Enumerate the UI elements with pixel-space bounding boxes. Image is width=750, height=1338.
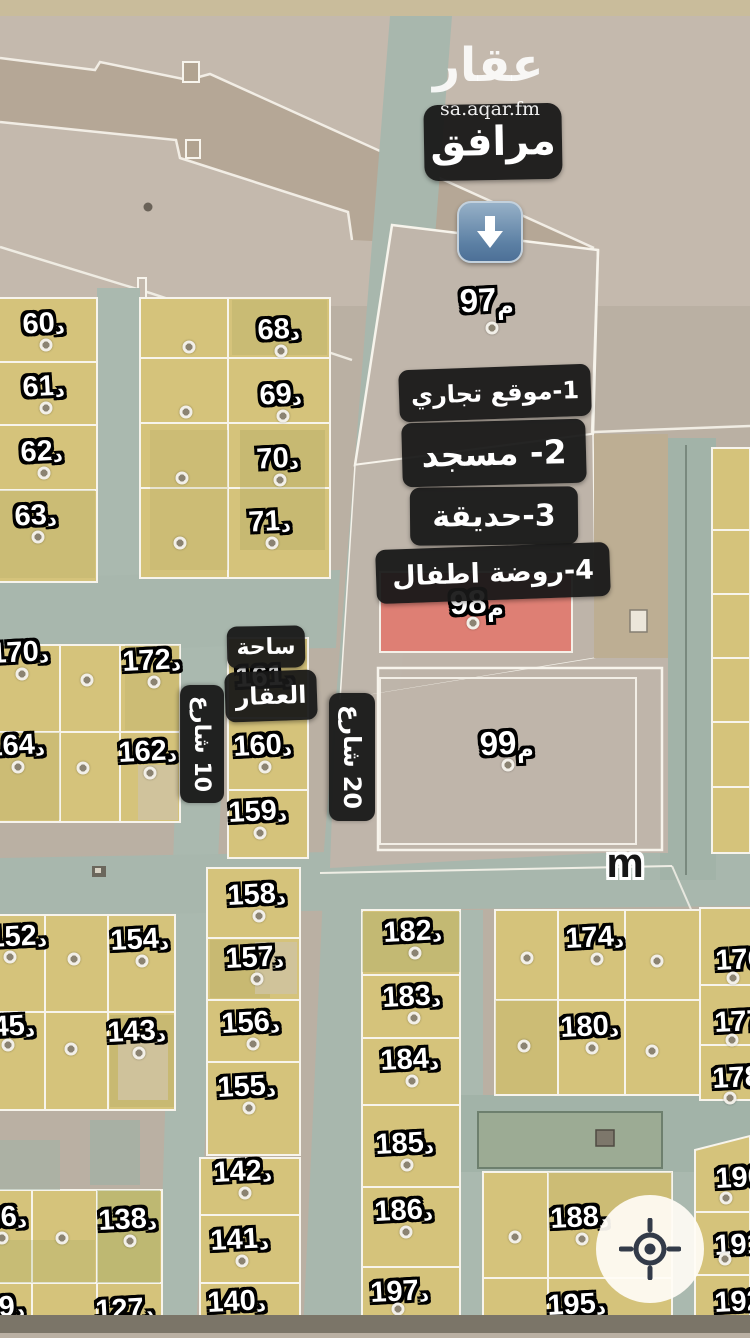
legend-item-2: 2- مسجد [401,419,587,488]
street-10-number: 10 [190,761,215,792]
legend-item-3: 3-حديقة [410,486,578,545]
small-structure [630,610,647,632]
bottom-bar [0,1315,750,1333]
plaza-label-line1: ساحة [227,625,306,668]
facilities-label: مرافق [430,118,556,166]
legend-text-3: 3-حديقة [432,498,556,534]
legend-item-1: 1-موقع تجاري [398,364,592,423]
legend-text-1: 1-موقع تجاري [410,376,579,410]
satellite-map [0,0,750,1333]
legend-text-4: 4-روضة اطفال [392,554,595,592]
legend-item-4: 4-روضة اطفال [375,542,611,604]
aqar-logo-watermark: عقار [433,40,543,92]
street-10-name: شارع [190,696,215,754]
legend-text-2: 2- مسجد [421,432,567,475]
aqar-map-screen: { "branding": {"logo": "عقار", "site": "… [0,0,750,1333]
map-canvas[interactable] [0,0,750,1333]
aqar-site-watermark: sa.aqar.fm [436,98,544,120]
down-arrow-icon [457,201,523,263]
down-arrow-glyph [473,214,507,250]
street-10-sign: شارع 10 [180,685,224,803]
plaza-text-2: العقار [235,681,307,711]
crosshair-icon [619,1218,681,1280]
street-20-number: 20 [338,776,366,809]
plaza-label-line2: العقار [224,669,318,722]
street-20-sign: شارع 20 [329,693,375,821]
m-marker: m [606,842,643,884]
locate-button[interactable] [596,1195,704,1303]
plaza-text-1: ساحة [236,634,296,660]
street-20-name: شارع [338,705,366,768]
park-area [478,1112,662,1168]
